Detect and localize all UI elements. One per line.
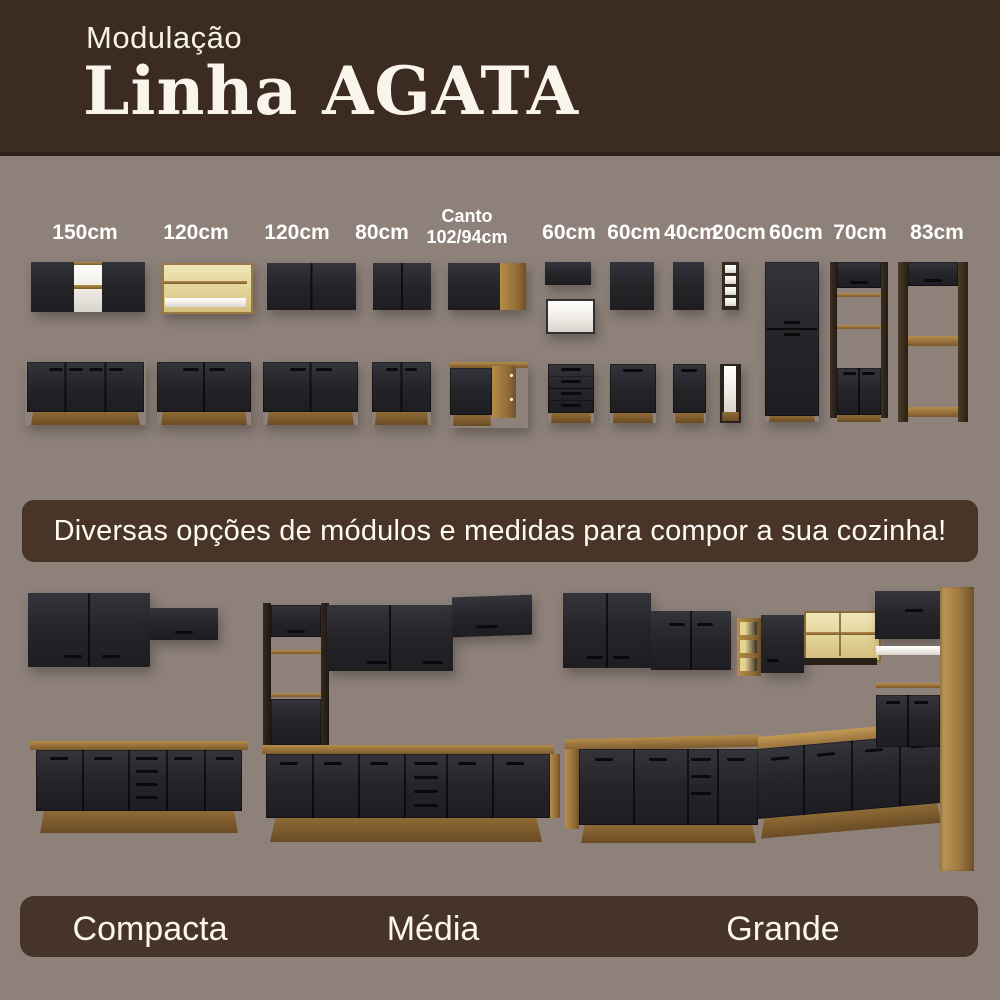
side-post bbox=[881, 262, 888, 418]
base-front bbox=[157, 362, 251, 412]
side-post bbox=[898, 262, 908, 422]
door-seam bbox=[717, 749, 719, 825]
door-handle bbox=[697, 623, 713, 626]
niche-cell bbox=[725, 298, 736, 306]
door-handle bbox=[316, 368, 332, 371]
wood-shelf bbox=[271, 650, 321, 654]
side-panel bbox=[550, 754, 560, 818]
top-cabinet bbox=[908, 262, 958, 286]
bottom-section bbox=[271, 699, 321, 745]
plinth bbox=[581, 825, 756, 843]
drawer-stack bbox=[548, 364, 594, 413]
drawer-handle bbox=[136, 796, 158, 799]
plinth bbox=[40, 811, 238, 833]
door-handle bbox=[109, 368, 123, 371]
module-40-base-cabinet bbox=[673, 364, 706, 423]
module-80-base-cabinet bbox=[372, 362, 431, 425]
door-handle bbox=[886, 701, 900, 704]
door-seam bbox=[358, 754, 360, 818]
plinth bbox=[375, 412, 428, 425]
door-seam bbox=[204, 750, 206, 811]
door-handle bbox=[324, 762, 342, 765]
door-handle bbox=[905, 609, 923, 612]
header: Modulação Linha AGATA bbox=[0, 0, 1000, 156]
door-handle bbox=[587, 656, 603, 659]
module-60-wall-cabinet bbox=[610, 262, 654, 310]
glass-flap-door bbox=[165, 298, 246, 307]
door-seam bbox=[492, 754, 494, 818]
drawer-handle bbox=[561, 392, 581, 395]
base-front bbox=[610, 364, 656, 413]
module-70-oven-tower bbox=[830, 262, 888, 422]
door-handle bbox=[183, 368, 199, 371]
drawer-handle bbox=[414, 790, 438, 793]
drawer-handle bbox=[561, 404, 581, 407]
plinth bbox=[675, 413, 704, 423]
module-120-base-cabinet bbox=[157, 362, 251, 425]
door-seam bbox=[404, 754, 406, 818]
door-seam bbox=[851, 741, 853, 811]
wood-shelf bbox=[74, 285, 102, 289]
pantry-body bbox=[765, 262, 819, 416]
wall-cabinet bbox=[327, 605, 453, 671]
door-handle bbox=[370, 762, 388, 765]
module-60-drawer-base bbox=[548, 364, 594, 423]
wood-shelf bbox=[876, 683, 940, 688]
wood-crossbar bbox=[908, 407, 958, 417]
door-handle bbox=[423, 661, 443, 664]
door-handle bbox=[367, 661, 387, 664]
door-handle bbox=[174, 757, 192, 760]
bottom-cabinet bbox=[837, 368, 881, 415]
wood-shelf bbox=[271, 693, 321, 697]
door-seam bbox=[803, 745, 805, 815]
drawer-handle bbox=[691, 792, 711, 795]
plinth bbox=[769, 416, 815, 422]
base-front bbox=[27, 362, 144, 412]
door-seam bbox=[633, 749, 635, 825]
door-seam bbox=[687, 749, 689, 825]
module-120-base-cabinet-b bbox=[263, 362, 358, 425]
module-150-wall-cabinet bbox=[31, 262, 145, 312]
drawer-handle bbox=[561, 368, 581, 371]
plinth bbox=[837, 415, 881, 422]
drawer-handle bbox=[414, 804, 438, 807]
plinth bbox=[161, 412, 247, 425]
door-handle bbox=[850, 281, 868, 284]
size-label-canto: Canto 102/94cm bbox=[417, 206, 517, 248]
module-80-wall-cabinet bbox=[373, 263, 431, 310]
wood-shelf bbox=[164, 281, 247, 284]
door-handle bbox=[914, 701, 928, 704]
door-handle bbox=[623, 369, 643, 372]
wood-shelf bbox=[837, 325, 881, 329]
base-front bbox=[266, 754, 550, 818]
footer-bar: Compacta Média Grande bbox=[20, 896, 978, 957]
top-cabinet bbox=[837, 262, 881, 288]
base-counter bbox=[262, 745, 554, 842]
base-front bbox=[36, 750, 242, 811]
door-handle bbox=[102, 655, 120, 658]
promo-image: Modulação Linha AGATA 150cm 120cm 120cm … bbox=[0, 0, 1000, 1000]
module-20-shelf-tower bbox=[722, 262, 739, 310]
drawer-handle bbox=[136, 757, 158, 760]
module-150-base-cabinet bbox=[25, 362, 146, 425]
module-60-tall-pantry bbox=[765, 262, 819, 422]
module-canto-wall-cabinet bbox=[448, 263, 526, 310]
door-handle bbox=[49, 368, 63, 371]
base-counter bbox=[30, 741, 248, 833]
base-front bbox=[579, 749, 758, 825]
door-handle bbox=[727, 758, 745, 761]
door-handle bbox=[865, 748, 883, 753]
plinth bbox=[270, 818, 542, 842]
wall-flap-cabinet bbox=[150, 608, 218, 640]
door-handle bbox=[771, 756, 789, 761]
door-seam bbox=[82, 750, 84, 811]
door-handle bbox=[209, 368, 225, 371]
door-handle bbox=[175, 631, 193, 634]
door-handle bbox=[784, 321, 800, 324]
wood-shelf bbox=[837, 293, 881, 297]
door-handle bbox=[216, 757, 234, 760]
countertop bbox=[30, 741, 248, 750]
corner-wood-panel bbox=[500, 263, 526, 310]
wood-shelf bbox=[74, 262, 102, 265]
wood-crossbar bbox=[908, 336, 958, 346]
footer-label-compacta: Compacta bbox=[50, 910, 250, 949]
module-40-wall-cabinet bbox=[673, 262, 704, 310]
side-post bbox=[958, 262, 968, 422]
door-handle bbox=[64, 655, 82, 658]
module-83-fridge-frame bbox=[898, 262, 968, 422]
side-panel bbox=[565, 749, 579, 829]
door-handle bbox=[767, 659, 779, 662]
banner: Diversas opções de módulos e medidas par… bbox=[22, 500, 978, 562]
plinth bbox=[267, 412, 354, 425]
wall-cabinet-single bbox=[761, 615, 804, 673]
door-handle bbox=[69, 368, 83, 371]
side-post bbox=[830, 262, 837, 418]
tall-wood-column bbox=[940, 587, 974, 871]
niche-cell bbox=[740, 640, 757, 653]
door-handle bbox=[784, 333, 800, 336]
niche-cell bbox=[725, 287, 736, 295]
wall-cabinet bbox=[28, 593, 150, 667]
door-handle bbox=[50, 757, 68, 760]
footer-label-grande: Grande bbox=[683, 910, 883, 949]
niche-cell bbox=[740, 658, 757, 671]
tall-unit-bottom-cabinet bbox=[876, 695, 940, 747]
plinth bbox=[453, 415, 491, 426]
glass-door-seam bbox=[839, 613, 841, 656]
base-front bbox=[450, 368, 492, 415]
plinth bbox=[31, 412, 140, 425]
door-handle bbox=[506, 762, 524, 765]
plinth bbox=[722, 412, 739, 421]
door-handle bbox=[386, 368, 398, 371]
open-niche-tower bbox=[737, 618, 761, 676]
plinth bbox=[613, 413, 653, 423]
countertop bbox=[262, 745, 554, 754]
door-seam bbox=[446, 754, 448, 818]
door-seam bbox=[128, 750, 130, 811]
niche-cell bbox=[740, 622, 757, 635]
module-canto-base-cabinet bbox=[450, 362, 528, 428]
door-seam bbox=[767, 328, 817, 330]
hinge bbox=[510, 398, 513, 401]
door-handle bbox=[924, 279, 942, 282]
open-wood-door bbox=[492, 366, 516, 418]
door-handle bbox=[89, 368, 103, 371]
module-120-wall-cabinet bbox=[267, 263, 356, 310]
base-front bbox=[673, 364, 706, 413]
header-kicker: Modulação bbox=[86, 20, 242, 56]
door-handle bbox=[476, 625, 498, 629]
module-20-base-unit bbox=[720, 364, 741, 423]
white-shelf bbox=[876, 646, 940, 655]
base-front bbox=[372, 362, 431, 412]
door-handle bbox=[290, 368, 306, 371]
drawer-handle bbox=[414, 776, 438, 779]
drawer-handle bbox=[136, 783, 158, 786]
size-label-150: 150cm bbox=[35, 222, 135, 244]
drawer-handle bbox=[414, 762, 438, 765]
niche-cell bbox=[725, 276, 736, 284]
door-handle bbox=[843, 372, 856, 375]
glass-lit-cabinet bbox=[804, 611, 881, 662]
module-60-glass-cabinet bbox=[546, 299, 595, 334]
drawer-handle bbox=[136, 770, 158, 773]
door-handle bbox=[94, 757, 112, 760]
niche-cell bbox=[725, 265, 736, 273]
module-60-base-cabinet bbox=[610, 364, 656, 423]
door-handle bbox=[649, 758, 667, 761]
module-60-flap-wall-cabinet bbox=[545, 262, 591, 285]
hinge bbox=[510, 374, 513, 377]
wall-cabinet-low bbox=[651, 611, 731, 670]
tall-unit-top-cabinet bbox=[875, 591, 941, 639]
module-120-open-wall-cabinet bbox=[162, 263, 253, 314]
footer-label-media: Média bbox=[333, 910, 533, 949]
drawer-handle bbox=[691, 775, 711, 778]
door-handle bbox=[817, 752, 835, 757]
banner-text: Diversas opções de módulos e medidas par… bbox=[54, 515, 947, 548]
size-label-120a: 120cm bbox=[146, 222, 246, 244]
top-cabinet bbox=[271, 605, 321, 637]
door-handle bbox=[287, 630, 305, 633]
base-front bbox=[263, 362, 358, 412]
wall-flap-cabinet bbox=[452, 595, 532, 638]
open-interior bbox=[724, 366, 736, 412]
base-counter-left-run bbox=[565, 737, 758, 843]
door-seam bbox=[312, 754, 314, 818]
door-handle bbox=[405, 368, 417, 371]
drawer-handle bbox=[691, 758, 711, 761]
cabinet-shadow-strip bbox=[804, 658, 877, 665]
plinth bbox=[551, 413, 591, 423]
page-title: Linha AGATA bbox=[83, 52, 579, 130]
tall-open-tower bbox=[263, 603, 329, 745]
side-post bbox=[263, 603, 271, 745]
door-handle bbox=[613, 656, 629, 659]
door-handle bbox=[669, 623, 685, 626]
wall-cabinet bbox=[563, 593, 651, 668]
door-handle bbox=[458, 762, 476, 765]
drawer-handle bbox=[561, 380, 581, 383]
door-handle bbox=[862, 372, 875, 375]
door-handle bbox=[280, 762, 298, 765]
door-handle bbox=[595, 758, 613, 761]
door-seam bbox=[166, 750, 168, 811]
size-label-83: 83cm bbox=[887, 222, 987, 244]
door-handle bbox=[681, 369, 697, 372]
